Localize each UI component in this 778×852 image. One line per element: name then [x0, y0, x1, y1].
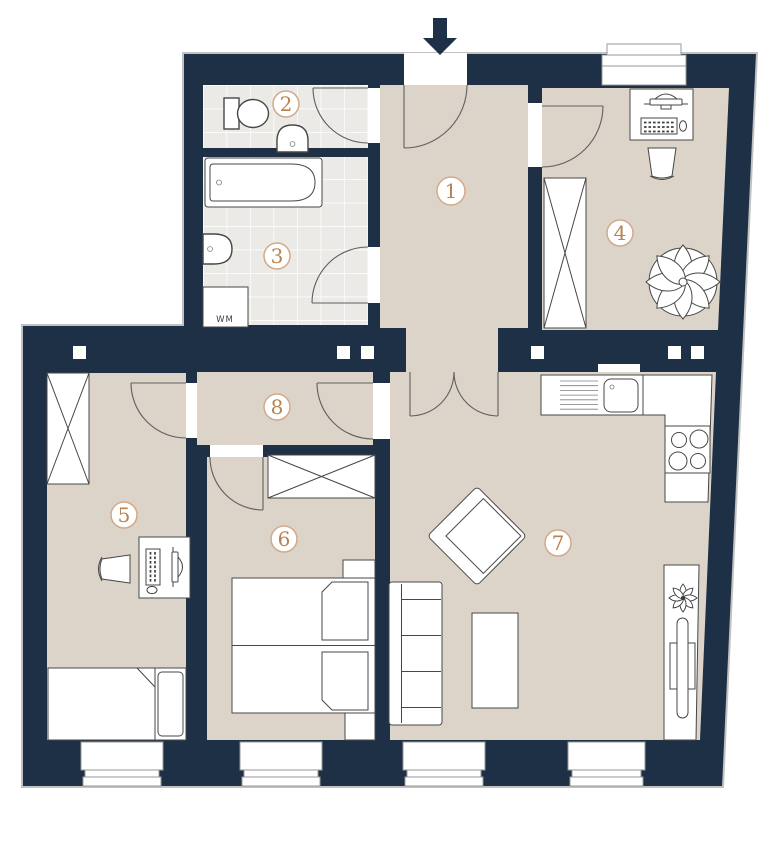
shaft-marker: [361, 346, 374, 359]
nightstand-icon: [343, 560, 375, 578]
wc-sink-icon: [277, 125, 308, 152]
room-8-7-door-opening: [373, 383, 390, 439]
room-4-door-opening: [528, 103, 542, 167]
shaft-marker: [668, 346, 681, 359]
floor-plan: WM: [0, 0, 778, 852]
pillow-icon: [322, 582, 368, 640]
room-label-7: 7: [545, 530, 571, 556]
coffee-table-icon: [472, 613, 518, 708]
room-label-1: 1: [437, 177, 465, 205]
wardrobe-icon: [544, 178, 586, 328]
svg-text:5: 5: [118, 503, 131, 527]
keyboard-icon: [641, 118, 677, 134]
room-1-floor: [380, 85, 528, 328]
tv-sideboard: [664, 565, 699, 740]
bath-door-opening: [368, 247, 380, 303]
office-chair-icon: [648, 148, 676, 180]
mouse-icon: [147, 586, 157, 593]
room-label-6: 6: [271, 526, 297, 552]
window-room-7-left: [403, 742, 485, 786]
svg-text:1: 1: [445, 179, 458, 203]
stove-icon: [665, 426, 710, 473]
keyboard-icon: [146, 549, 160, 585]
window-room-6: [240, 742, 322, 786]
floor-plan-canvas: WM: [0, 0, 778, 852]
shaft-marker: [531, 346, 544, 359]
window-room-7-right: [568, 742, 645, 786]
toilet-icon: [224, 98, 269, 129]
washing-machine-icon: WM: [203, 287, 248, 327]
small-plant-icon: [669, 584, 697, 612]
window-room-5: [81, 742, 163, 786]
room-label-8: 8: [264, 394, 290, 420]
svg-text:4: 4: [614, 221, 627, 245]
plant-icon: [646, 245, 720, 319]
pillow-icon: [322, 652, 368, 710]
entrance-opening: [404, 53, 467, 85]
svg-text:7: 7: [552, 531, 565, 555]
bath-sink-icon: [203, 234, 232, 264]
svg-text:3: 3: [271, 244, 284, 268]
wardrobe-icon: [47, 373, 89, 484]
room-1-doorway-floor: [406, 326, 498, 372]
window-room-4: [602, 44, 686, 85]
svg-text:2: 2: [280, 92, 293, 116]
sofa-icon: [389, 582, 442, 725]
shaft-marker: [337, 346, 350, 359]
nightstand-icon: [345, 713, 375, 740]
bathtub-icon: [205, 158, 322, 207]
office-chair-icon: [99, 555, 131, 583]
room-label-5: 5: [111, 502, 137, 528]
room-8-6-door-opening: [210, 445, 263, 457]
shaft-marker: [73, 346, 86, 359]
kitchen-wall-strip: [598, 364, 640, 372]
wardrobe-icon: [268, 455, 375, 498]
washing-machine-label: WM: [216, 315, 234, 325]
room-label-2: 2: [273, 91, 299, 117]
double-bed-icon: [232, 578, 375, 713]
shaft-marker: [691, 346, 704, 359]
kitchen-sink-icon: [604, 379, 638, 412]
room-5-door-opening: [186, 383, 197, 438]
entrance-arrow-icon: [423, 18, 457, 55]
mouse-icon: [680, 121, 687, 131]
room-label-4: 4: [607, 220, 633, 246]
svg-text:8: 8: [271, 395, 284, 419]
room-label-3: 3: [264, 243, 290, 269]
wc-door-opening: [368, 88, 380, 143]
single-bed-icon: [48, 668, 186, 740]
svg-text:6: 6: [278, 527, 291, 551]
